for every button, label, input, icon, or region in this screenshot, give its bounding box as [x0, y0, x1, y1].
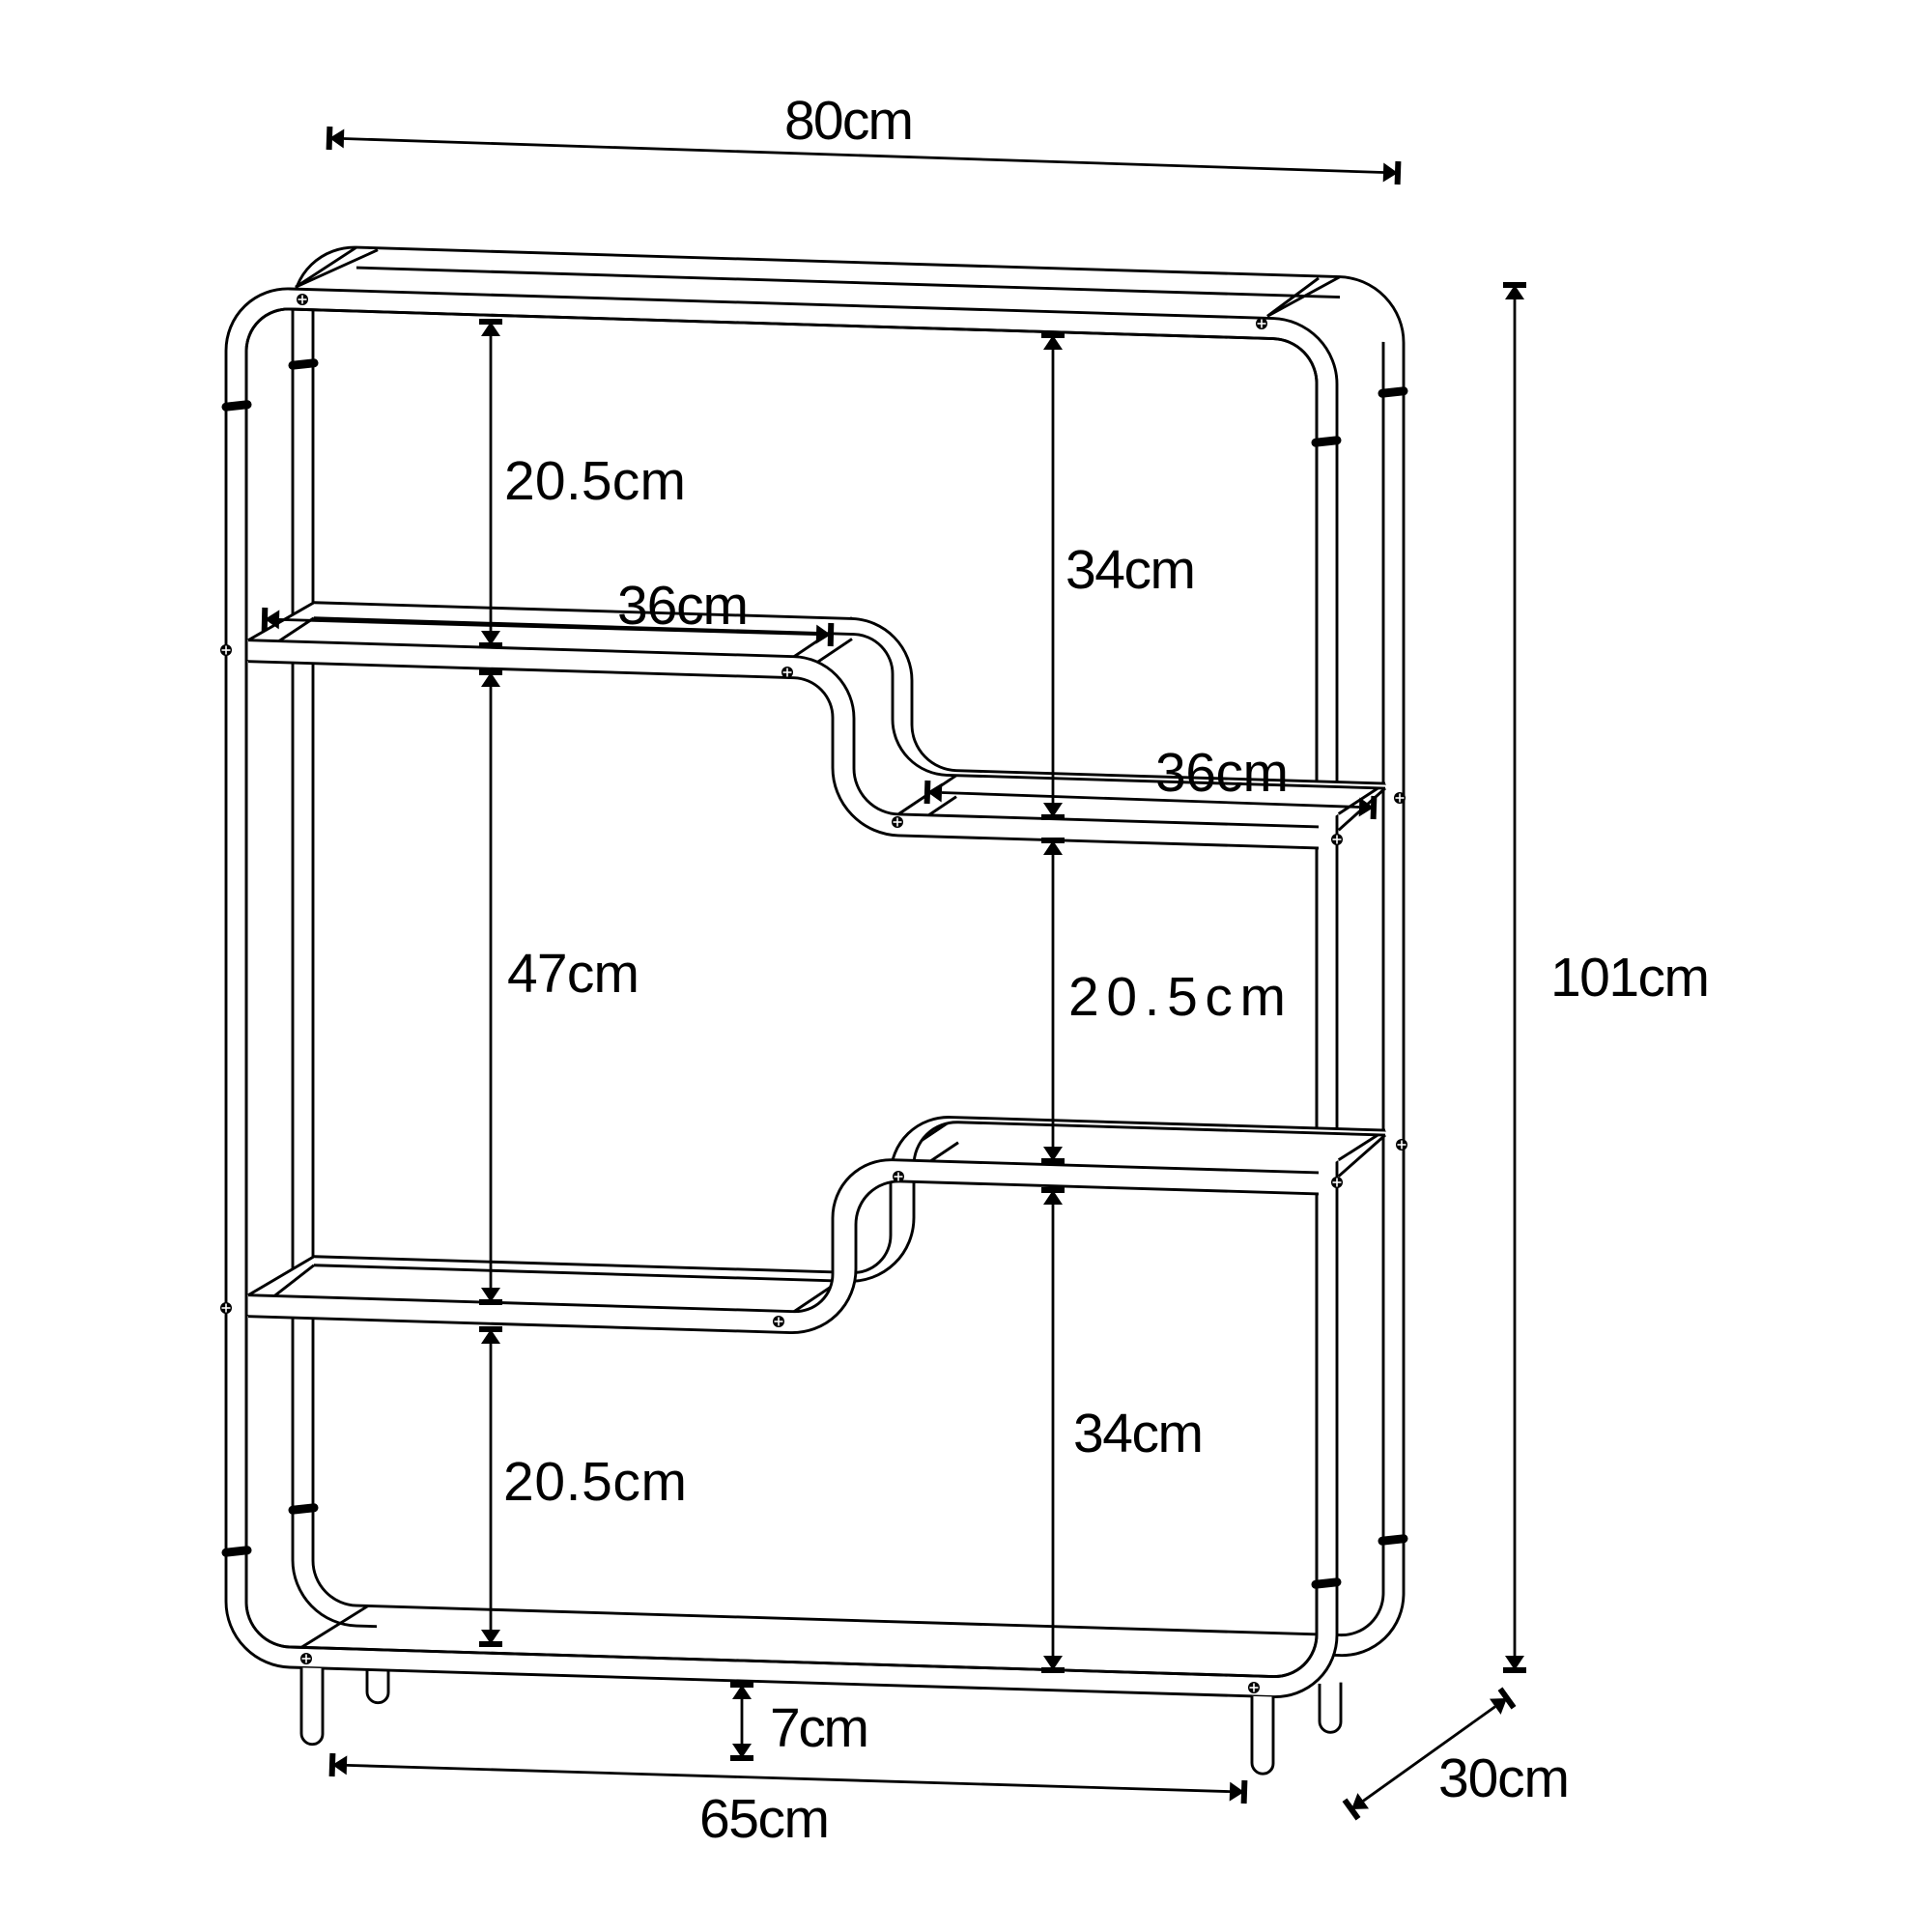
svg-text:34cm: 34cm	[1073, 1403, 1204, 1464]
svg-text:20.5cm: 20.5cm	[504, 450, 686, 512]
svg-text:36cm: 36cm	[617, 575, 749, 637]
svg-text:7cm: 7cm	[770, 1697, 869, 1759]
svg-text:30cm: 30cm	[1438, 1747, 1570, 1809]
svg-text:47cm: 47cm	[507, 943, 639, 1005]
svg-text:20.5cm: 20.5cm	[503, 1451, 687, 1513]
svg-text:101cm: 101cm	[1550, 947, 1710, 1009]
svg-text:34cm: 34cm	[1065, 539, 1196, 601]
svg-text:65cm: 65cm	[699, 1788, 830, 1850]
svg-text:80cm: 80cm	[784, 90, 914, 152]
svg-text:36cm: 36cm	[1155, 742, 1289, 804]
